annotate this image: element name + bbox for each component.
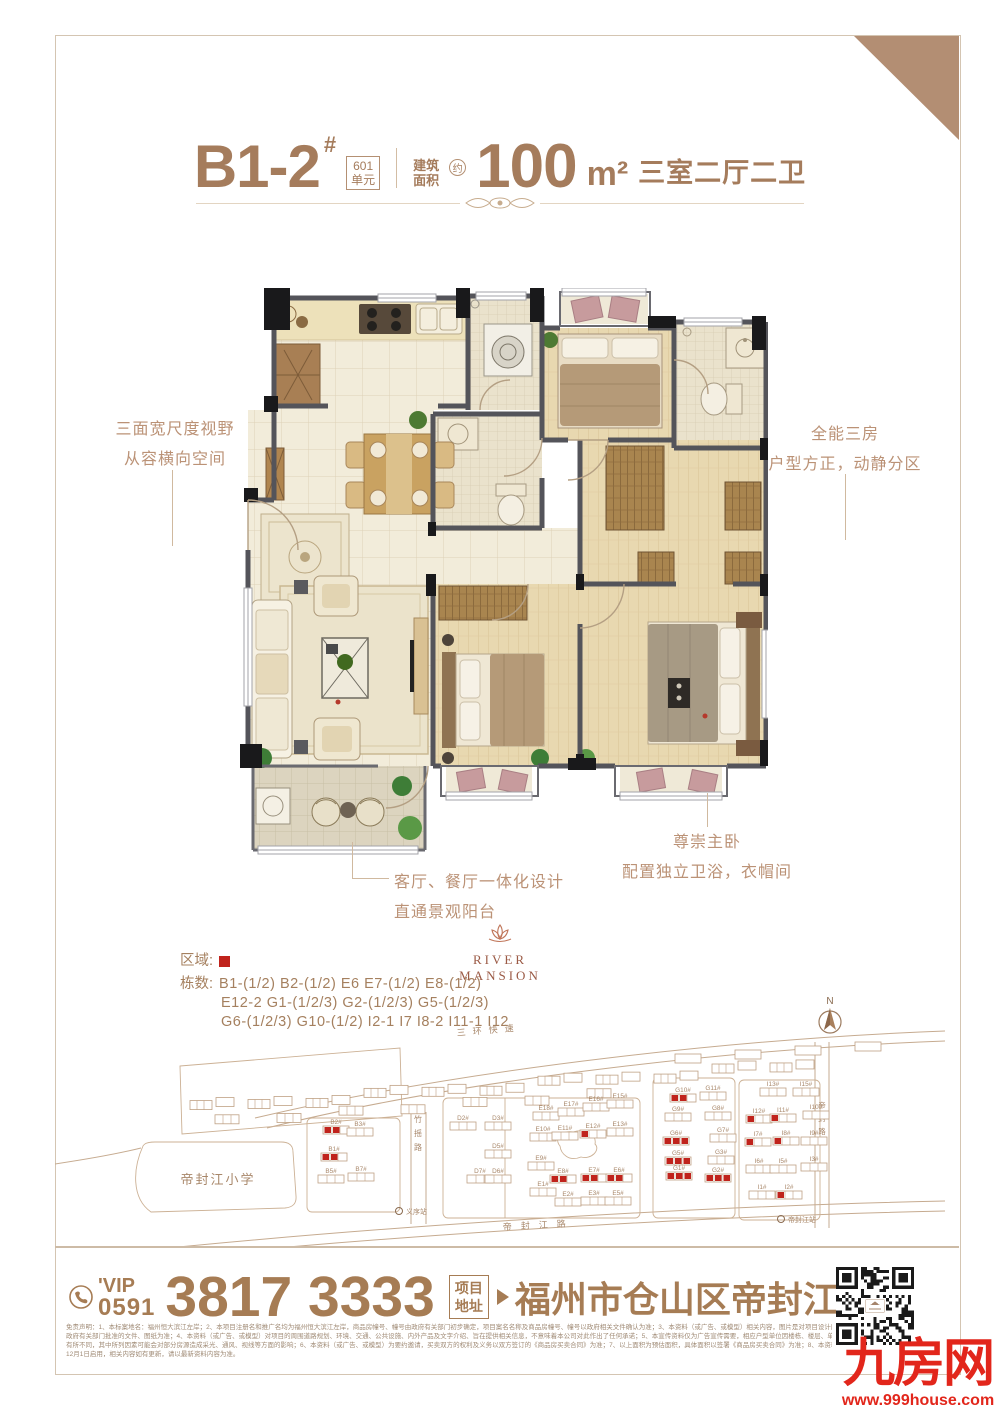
map-building: D2# — [450, 1115, 476, 1130]
svg-text:I9#: I9# — [810, 1130, 819, 1137]
svg-text:D2#: D2# — [457, 1115, 469, 1122]
svg-text:D5#: D5# — [492, 1143, 504, 1150]
unit-hash: # — [324, 132, 336, 158]
svg-text:G8#: G8# — [712, 1105, 725, 1112]
disclaimer-text: 免责声明：1、本标案地名：福州恒大滨江左岸；2、本项目注册名和推广名均为福州恒大… — [66, 1323, 832, 1359]
svg-text:D6#: D6# — [492, 1168, 504, 1175]
disclaimer-line3: 有所不同，其中所列因素可能会对部分房源造成采光、通风、视线等方面的影响；6、本资… — [66, 1341, 832, 1350]
map-building: G5# — [665, 1150, 691, 1165]
map-building: B3# — [347, 1121, 373, 1136]
disclaimer-line4: 12月1日启用，相关内容如有更新，请以最新资料内容为准。 — [66, 1350, 832, 1359]
qr-code — [836, 1267, 930, 1345]
layout-text: 三室二厅二卫 — [638, 151, 806, 190]
unit-number: 601 — [353, 159, 373, 173]
map-building: E13# — [607, 1121, 633, 1136]
svg-text:E6#: E6# — [613, 1167, 625, 1174]
map-building: B1# — [321, 1146, 347, 1161]
floor-plan — [228, 288, 768, 866]
svg-text:I10#: I10# — [810, 1104, 823, 1111]
unit-code: B1-2 — [194, 141, 320, 194]
svg-text:E10#: E10# — [536, 1126, 551, 1133]
project-address: 福州市仓山区帝封江 — [515, 1271, 839, 1323]
address-box-line1: 项目 — [455, 1279, 483, 1297]
svg-text:E13#: E13# — [613, 1121, 628, 1128]
svg-text:E3#: E3# — [588, 1190, 600, 1197]
svg-text:I11#: I11# — [777, 1107, 789, 1114]
leader-br-v — [707, 793, 708, 827]
callout-left-line2: 从容横向空间 — [90, 445, 260, 475]
map-building: E2# — [555, 1191, 581, 1206]
map-building: G6# — [663, 1130, 689, 1145]
map-building: E7# — [581, 1167, 607, 1182]
map-building: I12# — [746, 1108, 772, 1123]
approx-badge: 约 — [449, 159, 466, 176]
folded-corner-decoration — [854, 36, 959, 140]
map-building: E12# — [580, 1123, 606, 1138]
area-label-2: 面积 — [413, 173, 439, 188]
map-building: D6# — [485, 1168, 511, 1183]
svg-text:G6#: G6# — [670, 1130, 683, 1137]
svg-text:I8#: I8# — [782, 1130, 791, 1137]
svg-text:I2#: I2# — [785, 1184, 794, 1191]
area-label: 建筑 面积 — [413, 158, 439, 188]
callout-left: 三面宽尺度视野 从容横向空间 — [90, 415, 260, 475]
svg-text:E18#: E18# — [539, 1105, 554, 1112]
footer-separator — [55, 1246, 959, 1248]
svg-text:E15#: E15# — [613, 1093, 628, 1100]
svg-text:N: N — [826, 996, 833, 1007]
svg-text:帝封江小学: 帝封江小学 — [180, 1172, 255, 1187]
svg-text:D3#: D3# — [492, 1115, 504, 1122]
map-building: E3# — [581, 1190, 607, 1205]
map-building: E11# — [552, 1125, 578, 1140]
map-building: D3# — [485, 1115, 511, 1130]
unit-number-label: 单元 — [351, 173, 375, 187]
map-building: E18# — [533, 1105, 559, 1120]
svg-text:B7#: B7# — [355, 1166, 367, 1173]
svg-text:G2#: G2# — [712, 1167, 725, 1174]
map-building: G7# — [710, 1127, 736, 1142]
svg-text:帝封江路: 帝封江路 — [503, 1217, 575, 1232]
svg-text:I3#: I3# — [810, 1156, 819, 1163]
map-building: D5# — [485, 1143, 511, 1158]
living-room-furniture — [252, 576, 428, 760]
map-building: I8# — [773, 1130, 799, 1145]
svg-text:I7#: I7# — [754, 1131, 763, 1138]
phone-icon — [68, 1284, 94, 1310]
svg-text:I12#: I12# — [753, 1108, 766, 1115]
svg-text:E7#: E7# — [588, 1167, 600, 1174]
svg-text:D7#: D7# — [474, 1168, 486, 1175]
map-building: E17# — [558, 1101, 584, 1116]
svg-text:E1#: E1# — [537, 1181, 549, 1188]
leader-right — [845, 474, 846, 540]
svg-text:B2#: B2# — [330, 1119, 342, 1126]
title-divider — [396, 148, 397, 188]
map-building: G9# — [665, 1106, 691, 1121]
svg-text:E5#: E5# — [612, 1190, 624, 1197]
disclaimer-line2: 政府有关部门批准的文件、图纸为准；4、本资料（或广告、或模型）对项目的周围道路规… — [66, 1332, 832, 1341]
leader-left — [172, 470, 173, 546]
area-label-1: 建筑 — [413, 158, 439, 173]
svg-text:G9#: G9# — [672, 1106, 685, 1113]
legend-area-label: 区域: — [180, 952, 213, 971]
svg-text:E16#: E16# — [589, 1096, 604, 1103]
ornament-flourish — [462, 194, 538, 212]
svg-text:路: 路 — [414, 1142, 422, 1152]
svg-text:B1#: B1# — [328, 1146, 340, 1153]
ornament-line-right — [540, 203, 804, 204]
svg-text:E2#: E2# — [562, 1191, 574, 1198]
callout-right-line1: 全能三房 — [760, 420, 930, 450]
contact-bar: 'VIP 0591 3817 3333 项目 地址 福州市仓山区帝封江 — [68, 1266, 968, 1328]
area-value: 100 — [476, 141, 576, 194]
legend-line-2: E12-2 G1-(1/2/3) G2-(1/2/3) G5-(1/2/3) — [221, 994, 509, 1013]
site-logo: 九房网 www.999house.com — [840, 1336, 996, 1410]
svg-text:G5#: G5# — [672, 1150, 685, 1157]
map-building: G3# — [708, 1149, 734, 1164]
site-map: 三环快速帝封江路竹摇路帝封路帝封江小学义序站帝封江站 B2#B3#B1#B5#B… — [55, 1018, 945, 1246]
svg-text:E9#: E9# — [535, 1155, 547, 1162]
svg-text:I1#: I1# — [758, 1184, 767, 1191]
map-building: I3# — [801, 1156, 827, 1171]
unit-number-box: 601 单元 — [346, 156, 380, 190]
map-building: B5# — [318, 1168, 344, 1183]
svg-text:E8#: E8# — [557, 1168, 569, 1175]
callout-br-line2: 配置独立卫浴，衣帽间 — [612, 858, 802, 888]
svg-text:G1#: G1# — [673, 1165, 686, 1172]
site-logo-url: www.999house.com — [840, 1392, 996, 1410]
area-unit: m² — [587, 156, 629, 193]
callout-left-line1: 三面宽尺度视野 — [90, 415, 260, 445]
poster-page: B1-2 # 601 单元 建筑 面积 约 100 m² 三室二厅二卫 — [0, 0, 1000, 1414]
svg-text:G10#: G10# — [675, 1087, 691, 1094]
svg-text:I13#: I13# — [767, 1081, 780, 1088]
svg-text:竹: 竹 — [414, 1114, 422, 1124]
site-logo-name: 九房网 — [840, 1336, 996, 1392]
map-building: G8# — [705, 1105, 731, 1120]
map-building: E9# — [528, 1155, 554, 1170]
svg-text:路: 路 — [818, 1126, 826, 1136]
svg-text:帝封江站: 帝封江站 — [788, 1215, 816, 1224]
svg-text:G3#: G3# — [715, 1149, 728, 1156]
arrow-icon — [497, 1289, 509, 1305]
map-building: G10# — [670, 1087, 696, 1102]
map-building: I2# — [776, 1184, 802, 1199]
map-building: I7# — [745, 1131, 771, 1146]
area-code: 0591 — [98, 1297, 155, 1319]
svg-text:E12#: E12# — [586, 1123, 601, 1130]
header-title: B1-2 # 601 单元 建筑 面积 约 100 m² 三室二厅二卫 — [0, 130, 1000, 194]
svg-text:义序站: 义序站 — [406, 1207, 427, 1216]
svg-text:I6#: I6# — [755, 1158, 764, 1165]
svg-text:E17#: E17# — [564, 1101, 579, 1108]
svg-text:摇: 摇 — [414, 1128, 422, 1138]
svg-text:E11#: E11# — [558, 1125, 573, 1132]
callout-br-line1: 尊崇主卧 — [612, 828, 802, 858]
map-building: B2# — [323, 1119, 349, 1134]
map-building: E5# — [605, 1190, 631, 1205]
svg-text:三环快速: 三环快速 — [456, 1021, 521, 1038]
lotus-icon — [485, 922, 515, 944]
map-building: E6# — [606, 1167, 632, 1182]
svg-text:G11#: G11# — [705, 1085, 721, 1092]
legend-blocks-label: 栋数: — [180, 975, 213, 994]
phone-number: 3817 3333 — [165, 1269, 434, 1326]
address-box: 项目 地址 — [449, 1275, 489, 1319]
map-building: I11# — [770, 1107, 796, 1122]
map-building: I13# — [760, 1081, 786, 1096]
legend-red-swatch — [219, 956, 230, 967]
leader-bl-h — [352, 878, 389, 879]
map-building: G2# — [705, 1167, 731, 1182]
address-box-line2: 地址 — [455, 1297, 483, 1315]
svg-text:I5#: I5# — [779, 1158, 788, 1165]
map-building: G11# — [700, 1085, 726, 1100]
callout-right: 全能三房 户型方正，动静分区 — [760, 420, 930, 480]
svg-text:I15#: I15# — [800, 1081, 813, 1088]
svg-text:B3#: B3# — [354, 1121, 366, 1128]
map-building: I1# — [749, 1184, 775, 1199]
callout-bottom-right: 尊崇主卧 配置独立卫浴，衣帽间 — [612, 828, 802, 888]
svg-text:B5#: B5# — [325, 1168, 337, 1175]
legend-line-1: B1-(1/2) B2-(1/2) E6 E7-(1/2) E8-(1/2) — [219, 975, 481, 994]
map-building: G1# — [666, 1165, 692, 1180]
map-building: B7# — [348, 1166, 374, 1181]
leader-bl-v — [352, 842, 353, 879]
svg-text:G7#: G7# — [717, 1127, 730, 1134]
map-building: I5# — [770, 1158, 796, 1173]
disclaimer-line1: 免责声明：1、本标案地名：福州恒大滨江左岸；2、本项目注册名和推广名均为福州恒大… — [66, 1323, 832, 1332]
ornament-line-left — [196, 203, 460, 204]
map-building: I6# — [746, 1158, 772, 1173]
